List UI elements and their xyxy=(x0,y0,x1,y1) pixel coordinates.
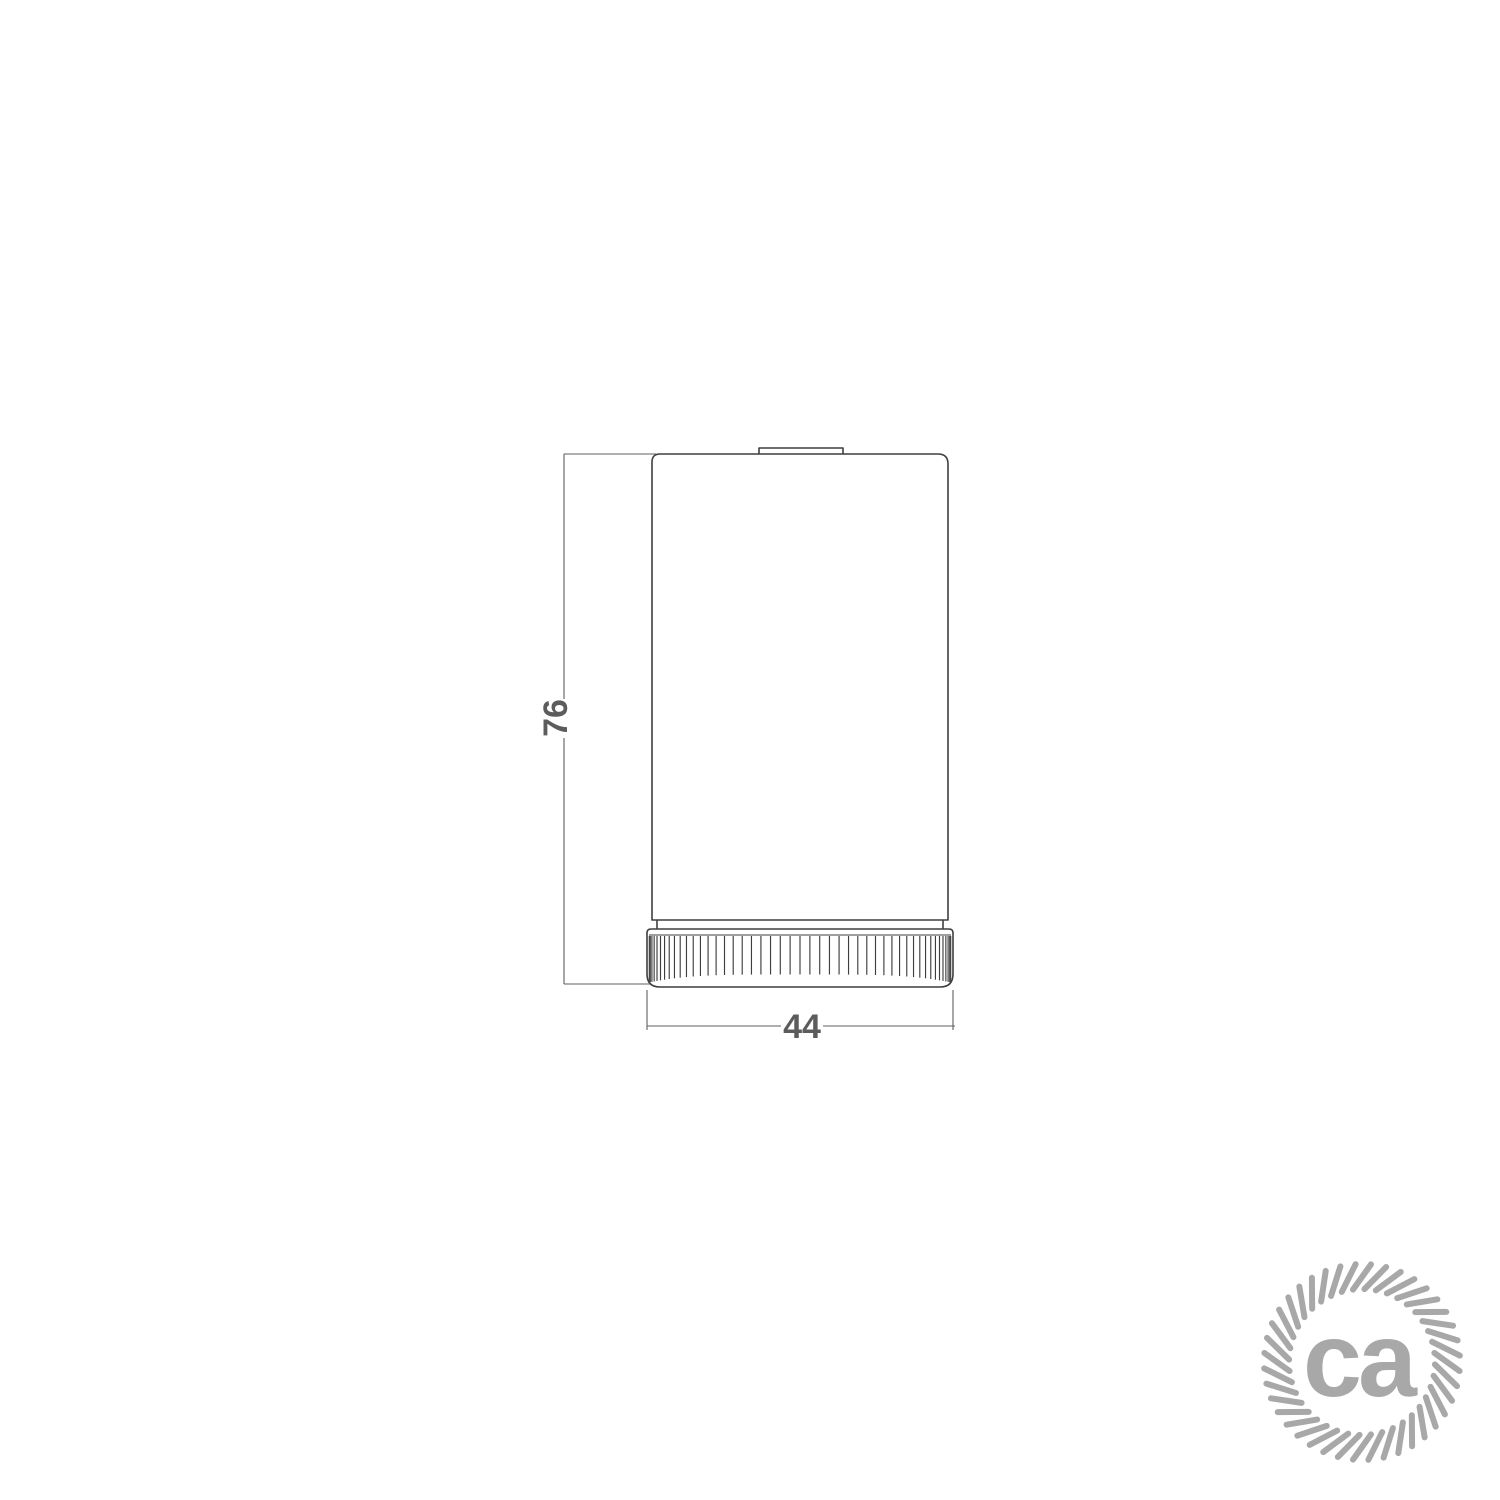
body-ring-neck xyxy=(657,920,943,929)
logo-text: ca xyxy=(1303,1301,1418,1419)
lamp-holder-body xyxy=(652,448,948,929)
knurl-ribs xyxy=(649,936,950,982)
height-dimension-label: 76 xyxy=(537,699,575,737)
top-cap-tab xyxy=(759,448,843,454)
lamp-holder-technical-drawing: 76 44 ca xyxy=(0,0,1500,1500)
body-outline xyxy=(652,454,948,920)
width-dimension-label: 44 xyxy=(783,1008,821,1046)
width-dimension: 44 xyxy=(647,990,955,1046)
technical-drawing-page: 76 44 ca xyxy=(0,0,1500,1500)
height-dimension-lines xyxy=(564,454,656,984)
brand-logo: ca xyxy=(1264,1264,1460,1460)
height-dimension: 76 xyxy=(537,454,656,984)
